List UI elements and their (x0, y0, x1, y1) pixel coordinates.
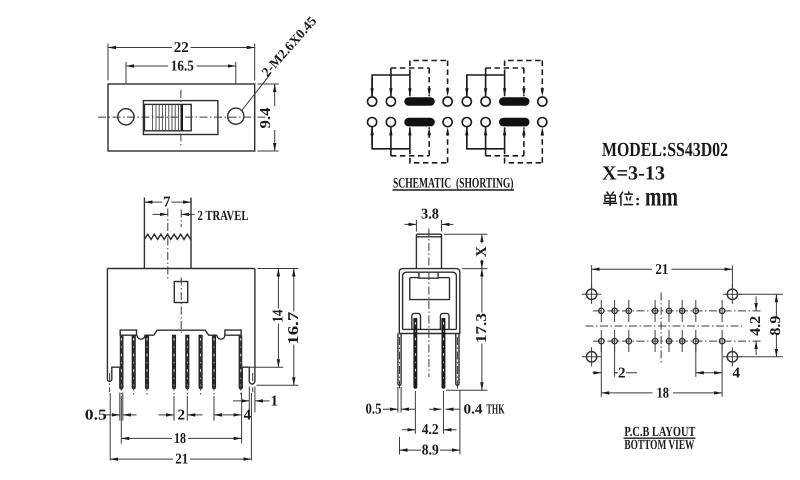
svg-text:THK: THK (487, 402, 505, 417)
svg-text:0.5: 0.5 (366, 402, 382, 418)
svg-text:3.8: 3.8 (421, 207, 439, 223)
svg-text:18: 18 (657, 386, 670, 402)
svg-text:BOTTOM VIEW: BOTTOM VIEW (624, 438, 694, 453)
svg-text:16.5: 16.5 (171, 59, 194, 75)
svg-text:mm: mm (645, 182, 678, 212)
svg-text:7: 7 (163, 195, 171, 211)
svg-text:18: 18 (174, 431, 186, 447)
svg-text:2 TRAVEL: 2 TRAVEL (198, 209, 249, 224)
svg-text:4.2: 4.2 (422, 422, 439, 438)
svg-text:4: 4 (733, 365, 741, 381)
svg-text:16.7: 16.7 (286, 311, 302, 345)
svg-text:0.4: 0.4 (464, 402, 483, 417)
svg-text:9.4: 9.4 (258, 107, 274, 129)
svg-text:4: 4 (244, 408, 252, 424)
svg-text:4.2: 4.2 (748, 316, 764, 336)
svg-text:21: 21 (655, 262, 668, 278)
svg-text:22: 22 (174, 40, 189, 56)
svg-text:17.3: 17.3 (474, 313, 490, 343)
svg-text:14: 14 (271, 309, 287, 322)
svg-text:2: 2 (177, 407, 185, 423)
svg-text:SCHEMATIC (SHORTING): SCHEMATIC (SHORTING) (393, 176, 514, 192)
svg-text:8.9: 8.9 (768, 316, 784, 336)
svg-text:MODEL:SS43D02: MODEL:SS43D02 (602, 139, 728, 161)
svg-text:0.5: 0.5 (85, 407, 107, 423)
svg-text:X: X (474, 246, 490, 257)
svg-text:1: 1 (271, 394, 279, 410)
svg-text:8.9: 8.9 (422, 443, 439, 459)
svg-text:21: 21 (175, 452, 188, 468)
svg-text:2: 2 (618, 365, 626, 381)
